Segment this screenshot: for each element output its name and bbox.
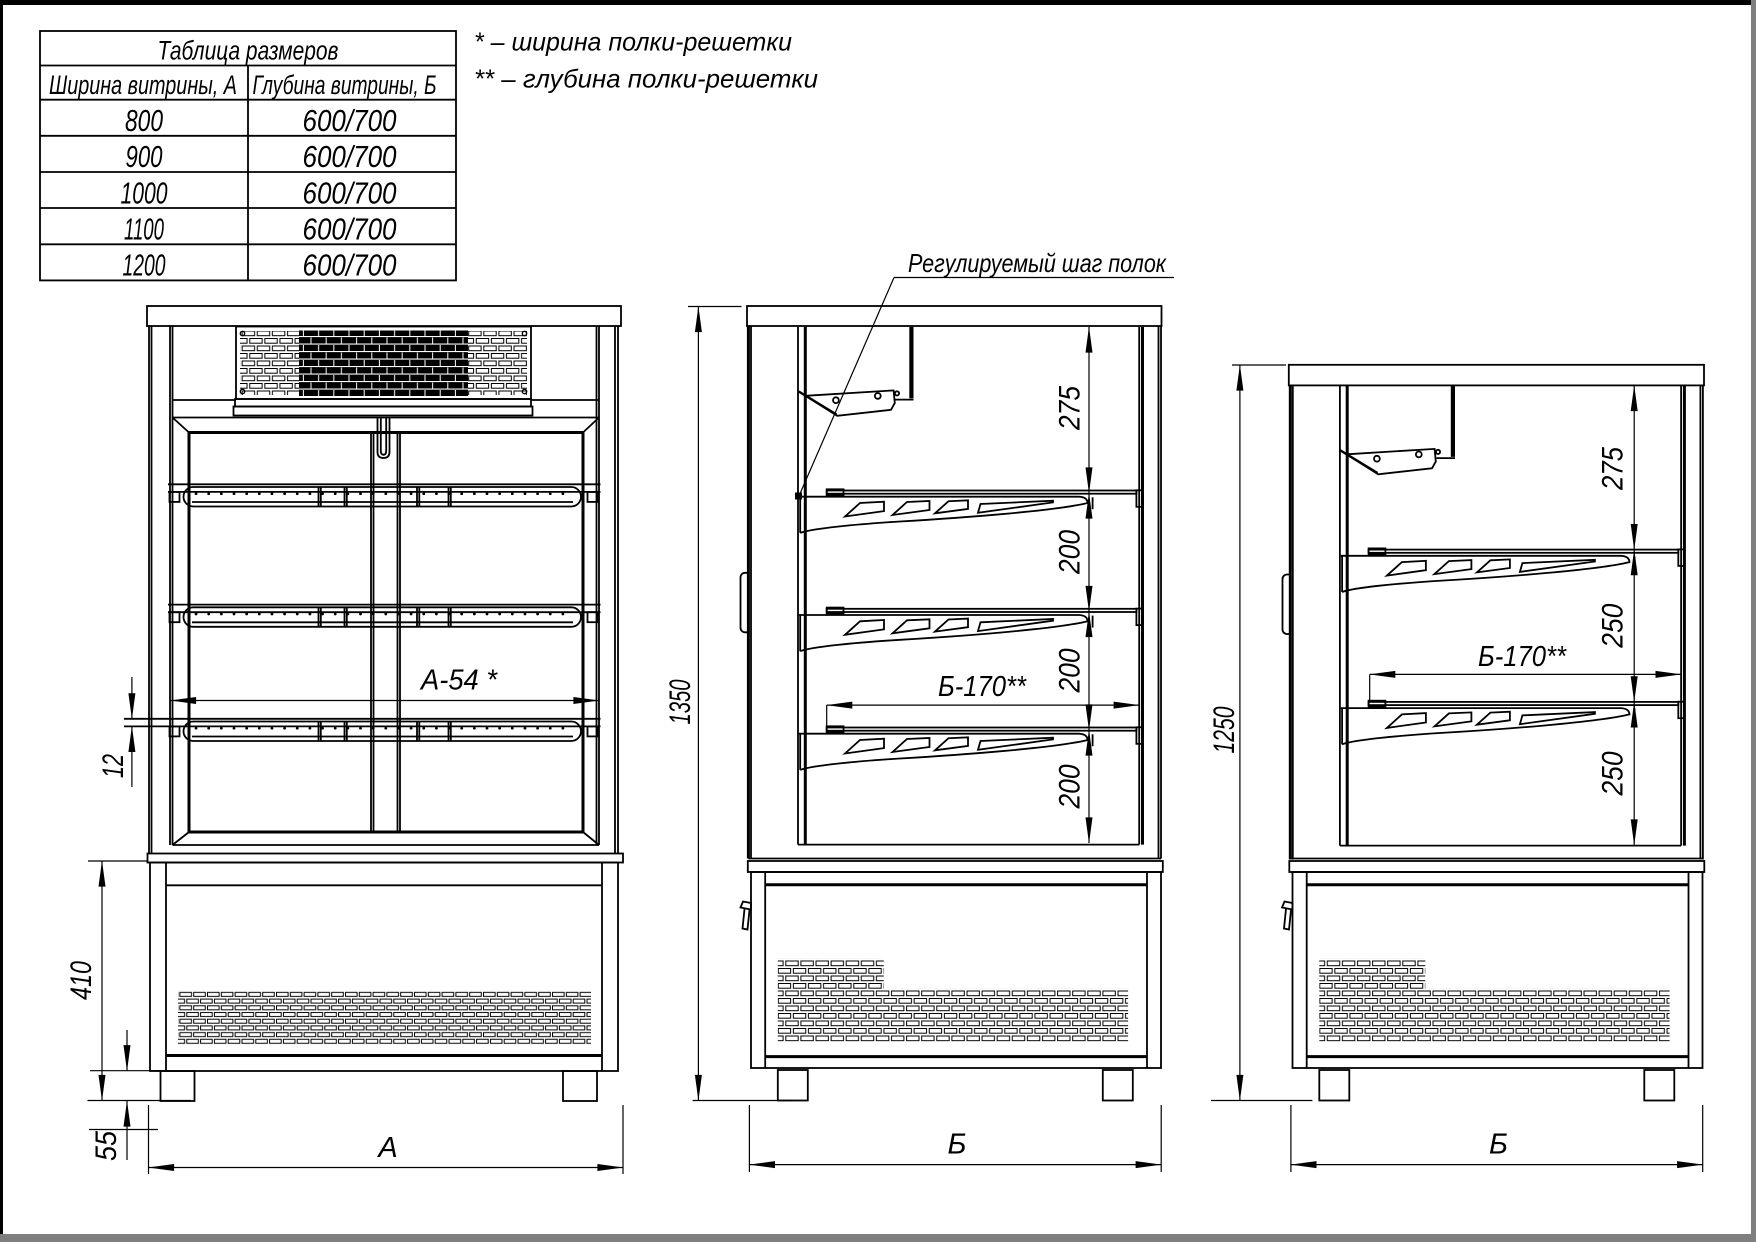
svg-text:800: 800 [125, 103, 163, 138]
svg-text:А: А [376, 1132, 397, 1164]
svg-text:1000: 1000 [121, 175, 168, 210]
svg-text:А-54 *: А-54 * [419, 665, 498, 697]
svg-text:* – ширина полки-решетки: * – ширина полки-решетки [474, 27, 792, 57]
svg-text:200: 200 [1054, 648, 1087, 693]
svg-text:1350: 1350 [664, 679, 697, 724]
svg-text:275: 275 [1597, 447, 1630, 491]
svg-text:410: 410 [65, 961, 98, 1000]
svg-text:200: 200 [1054, 530, 1087, 575]
svg-text:600/700: 600/700 [303, 211, 397, 246]
svg-text:900: 900 [126, 139, 163, 174]
svg-text:1250: 1250 [1208, 706, 1241, 753]
svg-text:Регулируемый шаг полок: Регулируемый шаг полок [908, 248, 1167, 278]
svg-text:600/700: 600/700 [303, 103, 397, 138]
svg-text:Б-170**: Б-170** [938, 671, 1028, 703]
svg-text:Б: Б [948, 1129, 967, 1161]
svg-text:12: 12 [97, 754, 130, 778]
svg-text:1200: 1200 [123, 248, 166, 283]
svg-text:250: 250 [1597, 751, 1630, 796]
svg-text:Таблица размеров: Таблица размеров [158, 36, 339, 66]
svg-text:Ширина витрины, А: Ширина витрины, А [49, 70, 237, 100]
svg-text:** – глубина полки-решетки: ** – глубина полки-решетки [474, 64, 818, 94]
svg-text:Б-170**: Б-170** [1478, 641, 1568, 673]
svg-text:600/700: 600/700 [303, 175, 397, 210]
svg-text:600/700: 600/700 [303, 139, 397, 174]
svg-text:55: 55 [90, 1131, 123, 1161]
svg-text:250: 250 [1597, 603, 1630, 648]
svg-text:275: 275 [1054, 386, 1087, 431]
svg-text:600/700: 600/700 [303, 248, 397, 283]
svg-text:Глубина витрины, Б: Глубина витрины, Б [253, 70, 437, 100]
svg-text:200: 200 [1054, 764, 1087, 809]
svg-text:1100: 1100 [124, 211, 164, 246]
